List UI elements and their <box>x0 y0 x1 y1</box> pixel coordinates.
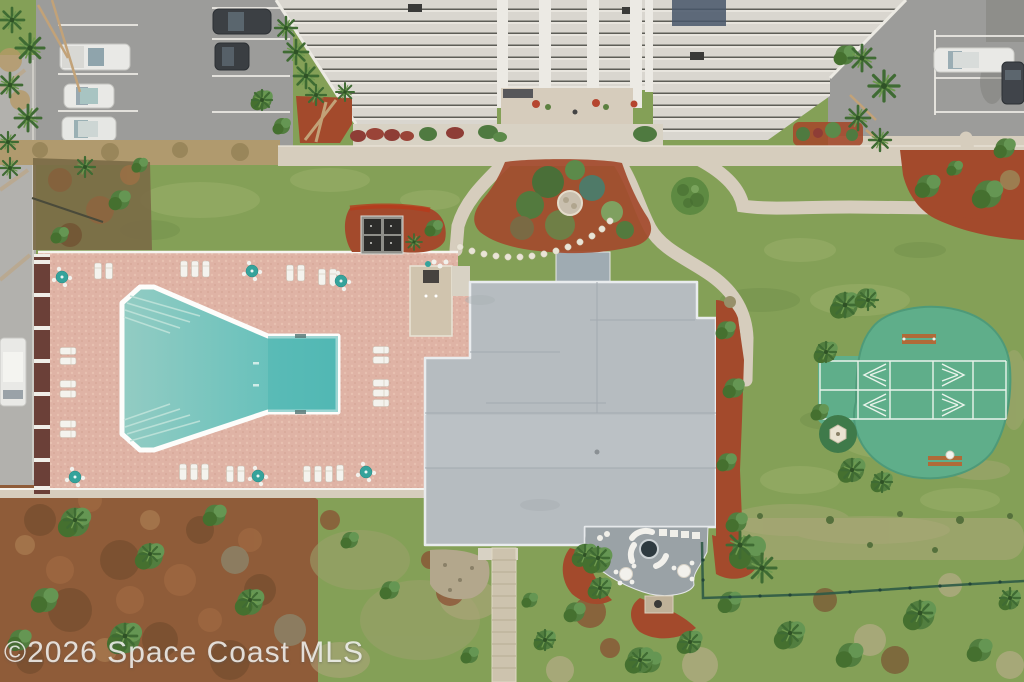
pool-ladder <box>295 410 306 414</box>
garden-center-feature <box>558 191 582 215</box>
aerial-photo-canvas <box>0 0 1024 682</box>
mulch-bed-left <box>296 96 352 143</box>
entry-canopy <box>556 252 610 282</box>
white-car <box>64 84 114 108</box>
pool-ladder <box>295 334 306 338</box>
white-sphere <box>946 451 954 459</box>
dark-car-2 <box>215 43 249 70</box>
fire-pit <box>640 540 658 558</box>
parked-van <box>0 338 26 406</box>
round-tree <box>671 177 709 215</box>
condo-building <box>276 0 906 166</box>
parking-lot-left <box>0 0 293 165</box>
west-hedge <box>32 158 152 250</box>
dark-car-1 <box>213 9 271 34</box>
mls-watermark: ©2026 Space Coast MLS <box>4 636 364 670</box>
aerial-photo: ©2026 Space Coast MLS <box>0 0 1024 682</box>
glass-atrium-roof <box>672 0 726 26</box>
bbq-grill-area <box>345 205 446 254</box>
deck-wall <box>34 254 50 494</box>
silver-car <box>62 117 116 141</box>
dark-car-right <box>1002 62 1024 104</box>
pool-deep-end <box>268 336 338 412</box>
gazebo <box>819 415 857 453</box>
grill-station <box>645 596 673 613</box>
